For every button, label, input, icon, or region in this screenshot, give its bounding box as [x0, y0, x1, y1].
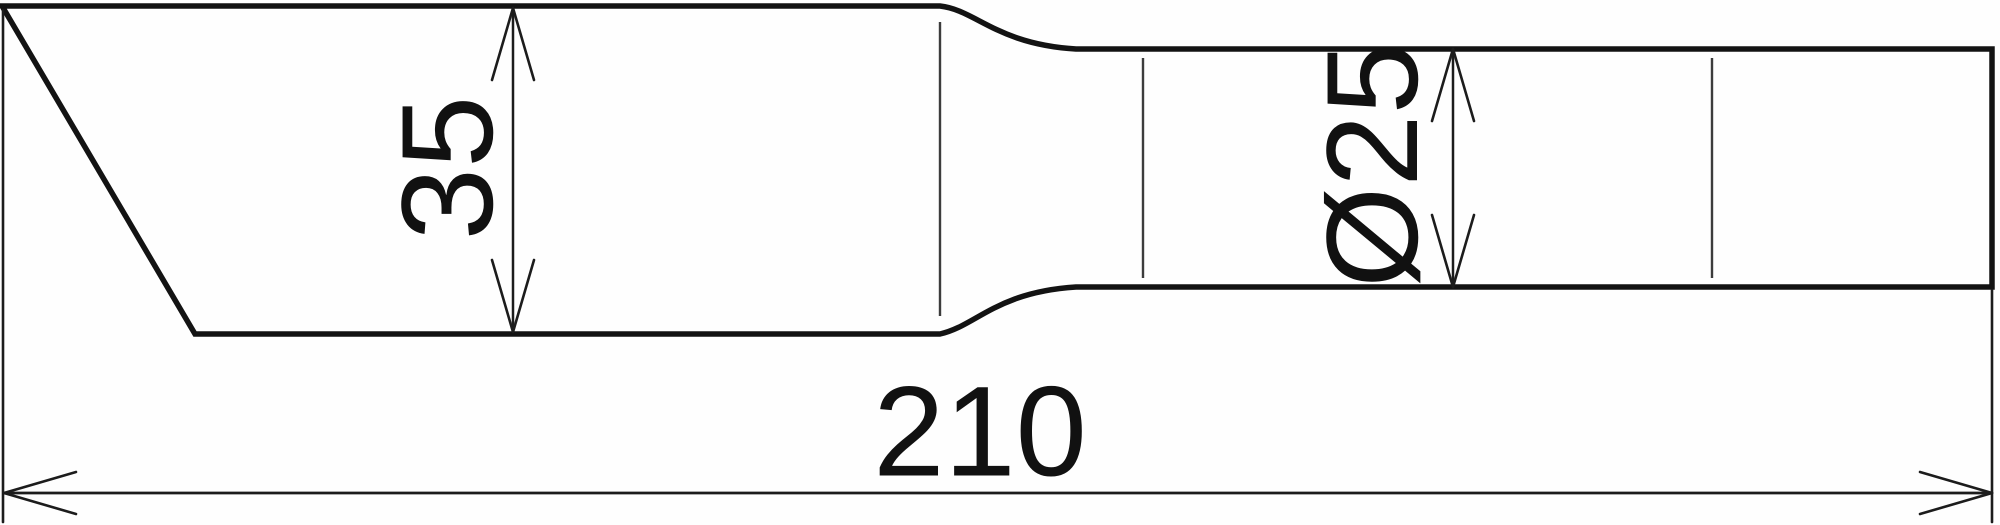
- part-outline-group: [2, 6, 1992, 334]
- part-outline: [2, 6, 1992, 334]
- length-dimension-label: 210: [873, 361, 1087, 504]
- technical-drawing-canvas: 35 Ø25 210: [0, 0, 2000, 525]
- diameter-dimension-label: Ø25: [1299, 42, 1445, 288]
- dimension-drawing: 35 Ø25 210: [0, 0, 2000, 525]
- height-dimension-label: 35: [374, 96, 520, 241]
- dimension-labels-group: 35 Ø25 210: [374, 42, 1445, 503]
